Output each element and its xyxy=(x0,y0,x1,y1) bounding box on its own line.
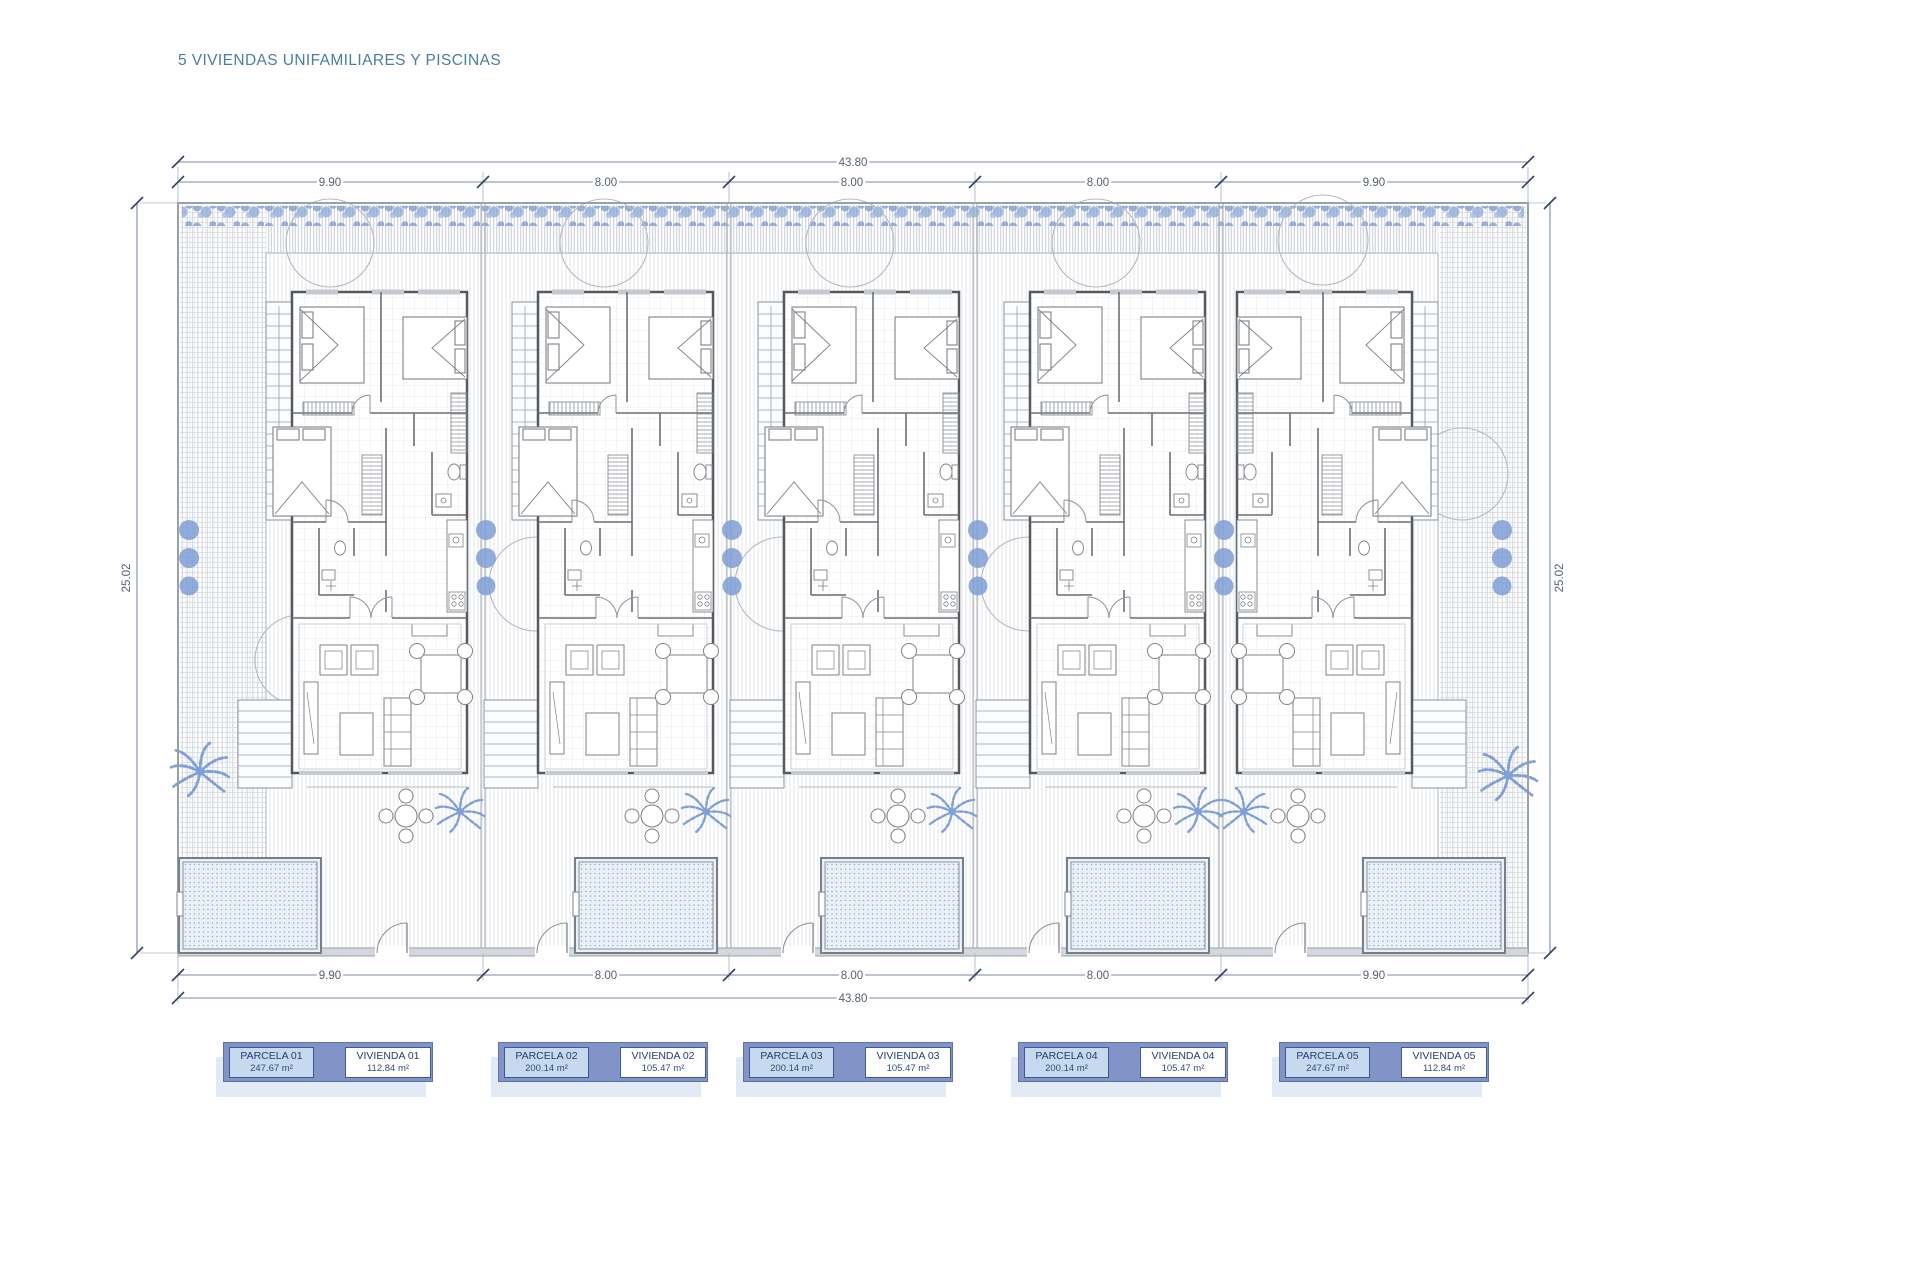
legend-unit-5: PARCELA 05 247.67 m² VIVIENDA 05 112.84 … xyxy=(1279,1042,1489,1082)
dwelling-2-area: 105.47 m² xyxy=(621,1063,705,1074)
dim-parcel-1-top: 9.90 xyxy=(319,177,341,189)
dim-top-parcels: 9.90 8.00 8.00 8.00 9.90 xyxy=(172,176,1534,189)
dim-parcel-4-bottom: 8.00 xyxy=(1087,970,1109,982)
parcel-1-box: PARCELA 01 247.67 m² xyxy=(229,1047,314,1078)
parcel-3-area: 200.14 m² xyxy=(750,1063,833,1074)
pool-3 xyxy=(819,858,963,953)
dwelling-5-area: 112.84 m² xyxy=(1402,1063,1486,1074)
dim-height-right: 25.02 xyxy=(1554,564,1566,593)
pool-5 xyxy=(1361,858,1505,953)
dim-height-left: 25.02 xyxy=(121,564,133,593)
dim-parcel-2-bottom: 8.00 xyxy=(595,970,617,982)
pool-1 xyxy=(177,858,321,953)
parcel-4-area: 200.14 m² xyxy=(1025,1063,1108,1074)
site-plan: 43.80 9.90 8.00 8.00 8.00 9.90 9.90 8.00 xyxy=(0,0,1920,1280)
dim-parcel-3-bottom: 8.00 xyxy=(841,970,863,982)
drawing-sheet: 5 VIVIENDAS UNIFAMILIARES Y PISCINAS xyxy=(0,0,1920,1280)
parcel-2-label: PARCELA 02 xyxy=(505,1050,588,1062)
legend-unit-3: PARCELA 03 200.14 m² VIVIENDA 03 105.47 … xyxy=(743,1042,953,1082)
hedge-band xyxy=(182,206,1524,226)
dwelling-2-label: VIVIENDA 02 xyxy=(621,1050,705,1062)
parcel-3-label: PARCELA 03 xyxy=(750,1050,833,1062)
dwelling-5-box: VIVIENDA 05 112.84 m² xyxy=(1401,1047,1487,1078)
dim-total-bottom: 43.80 xyxy=(839,993,868,1005)
dim-parcel-4-top: 8.00 xyxy=(1087,177,1109,189)
dwelling-1-box: VIVIENDA 01 112.84 m² xyxy=(345,1047,431,1078)
dim-bottom-total: 43.80 xyxy=(172,992,1534,1005)
pool-2 xyxy=(573,858,717,953)
dim-bottom-parcels: 9.90 8.00 8.00 8.00 9.90 xyxy=(172,969,1534,982)
dwelling-1-label: VIVIENDA 01 xyxy=(346,1050,430,1062)
legend-unit-4: PARCELA 04 200.14 m² VIVIENDA 04 105.47 … xyxy=(1018,1042,1228,1082)
parcel-2-area: 200.14 m² xyxy=(505,1063,588,1074)
dim-parcel-1-bottom: 9.90 xyxy=(319,970,341,982)
parcel-1-area: 247.67 m² xyxy=(230,1063,313,1074)
dim-parcel-5-top: 9.90 xyxy=(1363,177,1385,189)
dim-total-top: 43.80 xyxy=(839,157,868,169)
pool-4 xyxy=(1065,858,1209,953)
dwelling-4-area: 105.47 m² xyxy=(1141,1063,1225,1074)
parcel-2-box: PARCELA 02 200.14 m² xyxy=(504,1047,589,1078)
dim-left-height: 25.02 xyxy=(121,197,143,959)
dwelling-1-area: 112.84 m² xyxy=(346,1063,430,1074)
dim-parcel-3-top: 8.00 xyxy=(841,177,863,189)
dim-parcel-5-bottom: 9.90 xyxy=(1363,970,1385,982)
parcel-5-area: 247.67 m² xyxy=(1286,1063,1369,1074)
dim-parcel-2-top: 8.00 xyxy=(595,177,617,189)
dwelling-2-box: VIVIENDA 02 105.47 m² xyxy=(620,1047,706,1078)
parcel-1-label: PARCELA 01 xyxy=(230,1050,313,1062)
parcel-5-box: PARCELA 05 247.67 m² xyxy=(1285,1047,1370,1078)
parcel-4-label: PARCELA 04 xyxy=(1025,1050,1108,1062)
dim-right-height: 25.02 xyxy=(1544,197,1566,959)
dwelling-3-box: VIVIENDA 03 105.47 m² xyxy=(865,1047,951,1078)
dwelling-3-label: VIVIENDA 03 xyxy=(866,1050,950,1062)
parcel-3-box: PARCELA 03 200.14 m² xyxy=(749,1047,834,1078)
parcel-5-label: PARCELA 05 xyxy=(1286,1050,1369,1062)
dwelling-4-label: VIVIENDA 04 xyxy=(1141,1050,1225,1062)
dwelling-3-area: 105.47 m² xyxy=(866,1063,950,1074)
legend-unit-2: PARCELA 02 200.14 m² VIVIENDA 02 105.47 … xyxy=(498,1042,708,1082)
dwelling-4-box: VIVIENDA 04 105.47 m² xyxy=(1140,1047,1226,1078)
legend-unit-1: PARCELA 01 247.67 m² VIVIENDA 01 112.84 … xyxy=(223,1042,433,1082)
parcel-4-box: PARCELA 04 200.14 m² xyxy=(1024,1047,1109,1078)
dim-top-total: 43.80 xyxy=(172,156,1534,169)
dwelling-5-label: VIVIENDA 05 xyxy=(1402,1050,1486,1062)
